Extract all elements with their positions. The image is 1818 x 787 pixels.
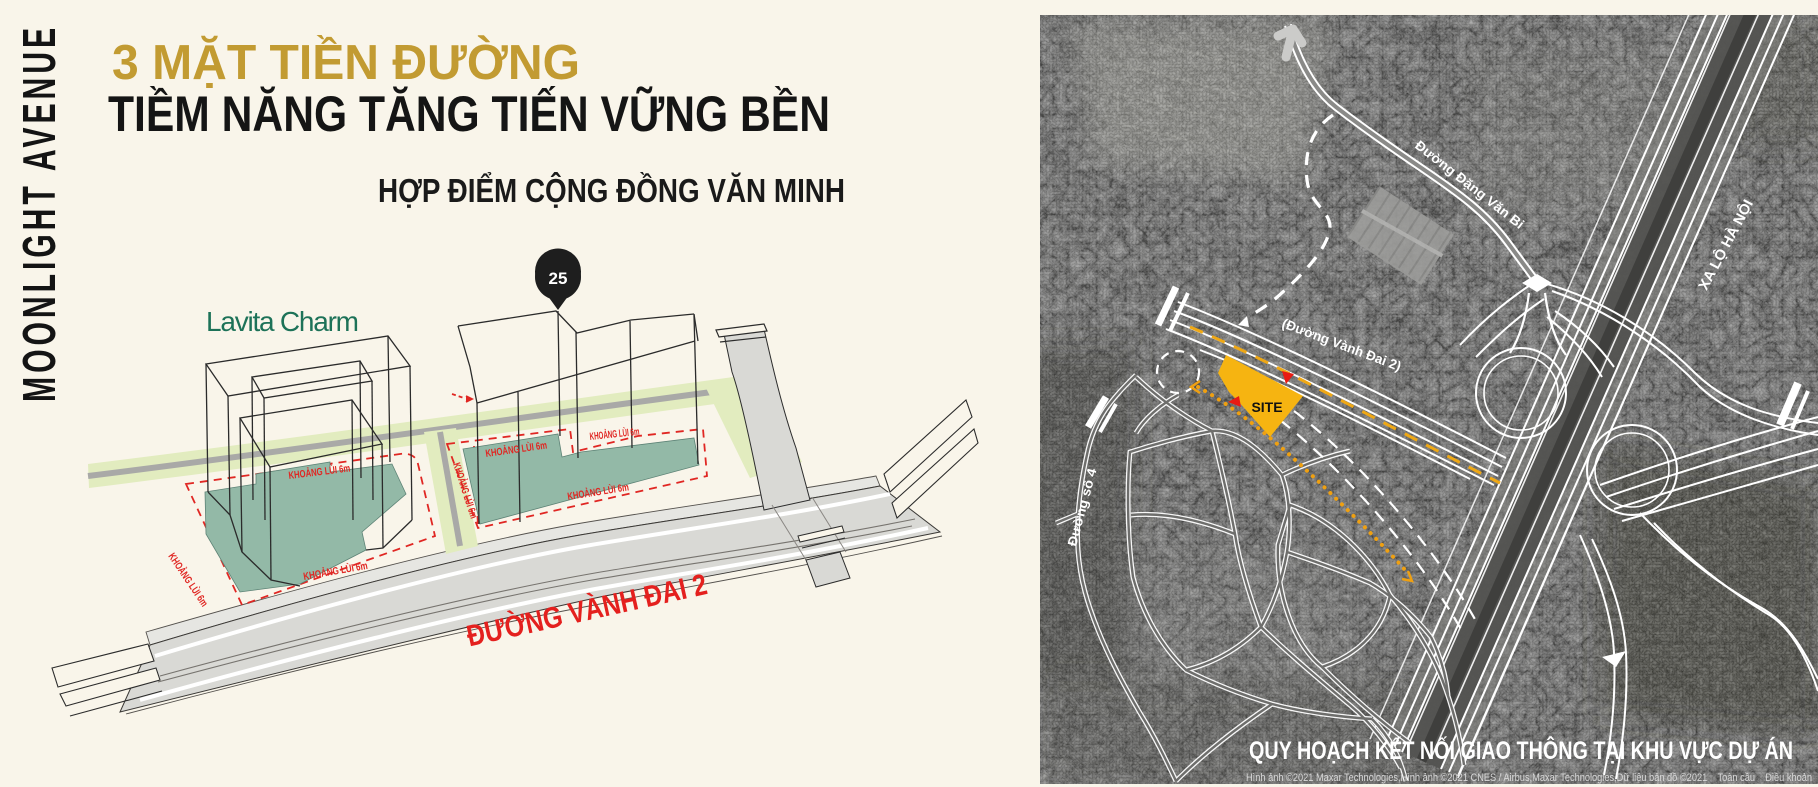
svg-text:QUY HOẠCH KẾT NỐI GIAO THÔNG T: QUY HOẠCH KẾT NỐI GIAO THÔNG TẠI KHU VỰC… <box>1249 735 1793 765</box>
svg-text:Lavita Charm: Lavita Charm <box>206 306 359 337</box>
svg-text:Hình ảnh ©2021 Maxar Technolog: Hình ảnh ©2021 Maxar Technologies,Hình ả… <box>1246 772 1812 784</box>
svg-text:25: 25 <box>549 269 568 288</box>
svg-text:KHOẢNG LÙI 6m: KHOẢNG LÙI 6m <box>166 550 211 609</box>
svg-text:SITE: SITE <box>1251 399 1282 415</box>
